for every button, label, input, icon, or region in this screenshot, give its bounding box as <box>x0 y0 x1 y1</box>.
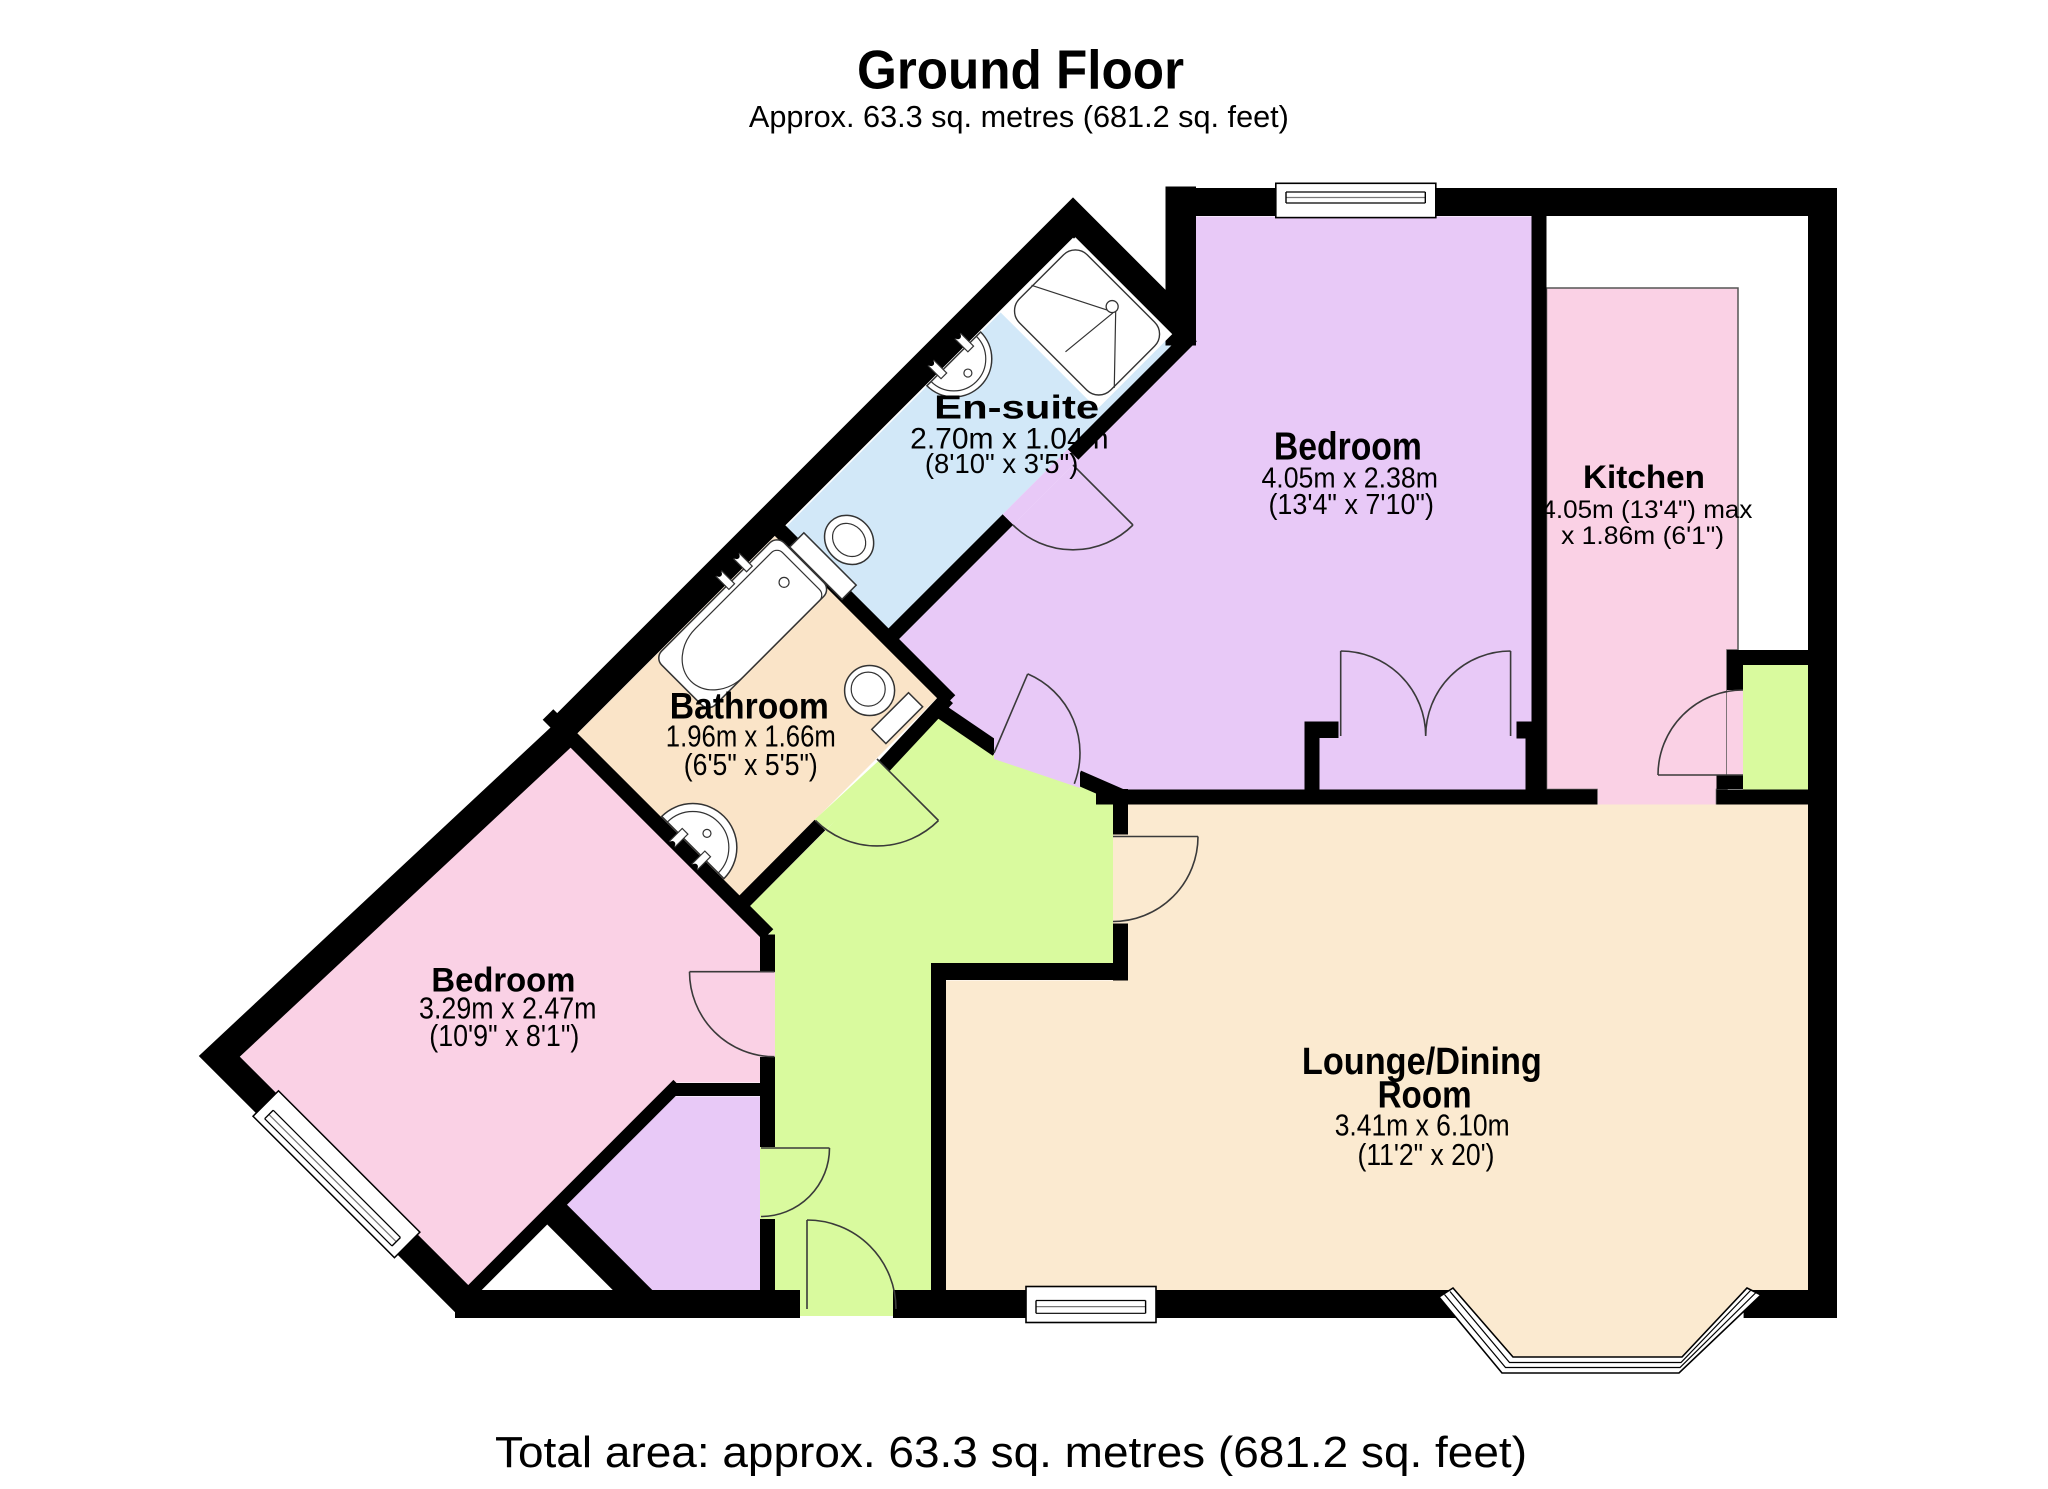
svg-text:(8'10" x 3'5"): (8'10" x 3'5") <box>925 448 1079 479</box>
svg-text:(11'2" x 20'): (11'2" x 20') <box>1358 1139 1495 1172</box>
svg-text:En-suite: En-suite <box>934 388 1099 425</box>
svg-text:x 1.86m (6'1"): x 1.86m (6'1") <box>1561 522 1724 550</box>
svg-text:(10'9" x 8'1"): (10'9" x 8'1") <box>429 1020 579 1053</box>
svg-text:Ground Floor: Ground Floor <box>857 40 1184 101</box>
svg-text:(13'4" x 7'10"): (13'4" x 7'10") <box>1268 489 1434 521</box>
svg-text:3.41m x 6.10m: 3.41m x 6.10m <box>1335 1110 1510 1143</box>
svg-text:4.05m (13'4") max: 4.05m (13'4") max <box>1541 496 1753 524</box>
svg-text:Kitchen: Kitchen <box>1583 459 1705 495</box>
svg-text:(6'5" x 5'5"): (6'5" x 5'5") <box>684 749 818 782</box>
svg-text:Total area: approx. 63.3 sq. m: Total area: approx. 63.3 sq. metres (681… <box>495 1428 1527 1477</box>
svg-text:Approx. 63.3 sq. metres (681.2: Approx. 63.3 sq. metres (681.2 sq. feet) <box>749 100 1289 134</box>
